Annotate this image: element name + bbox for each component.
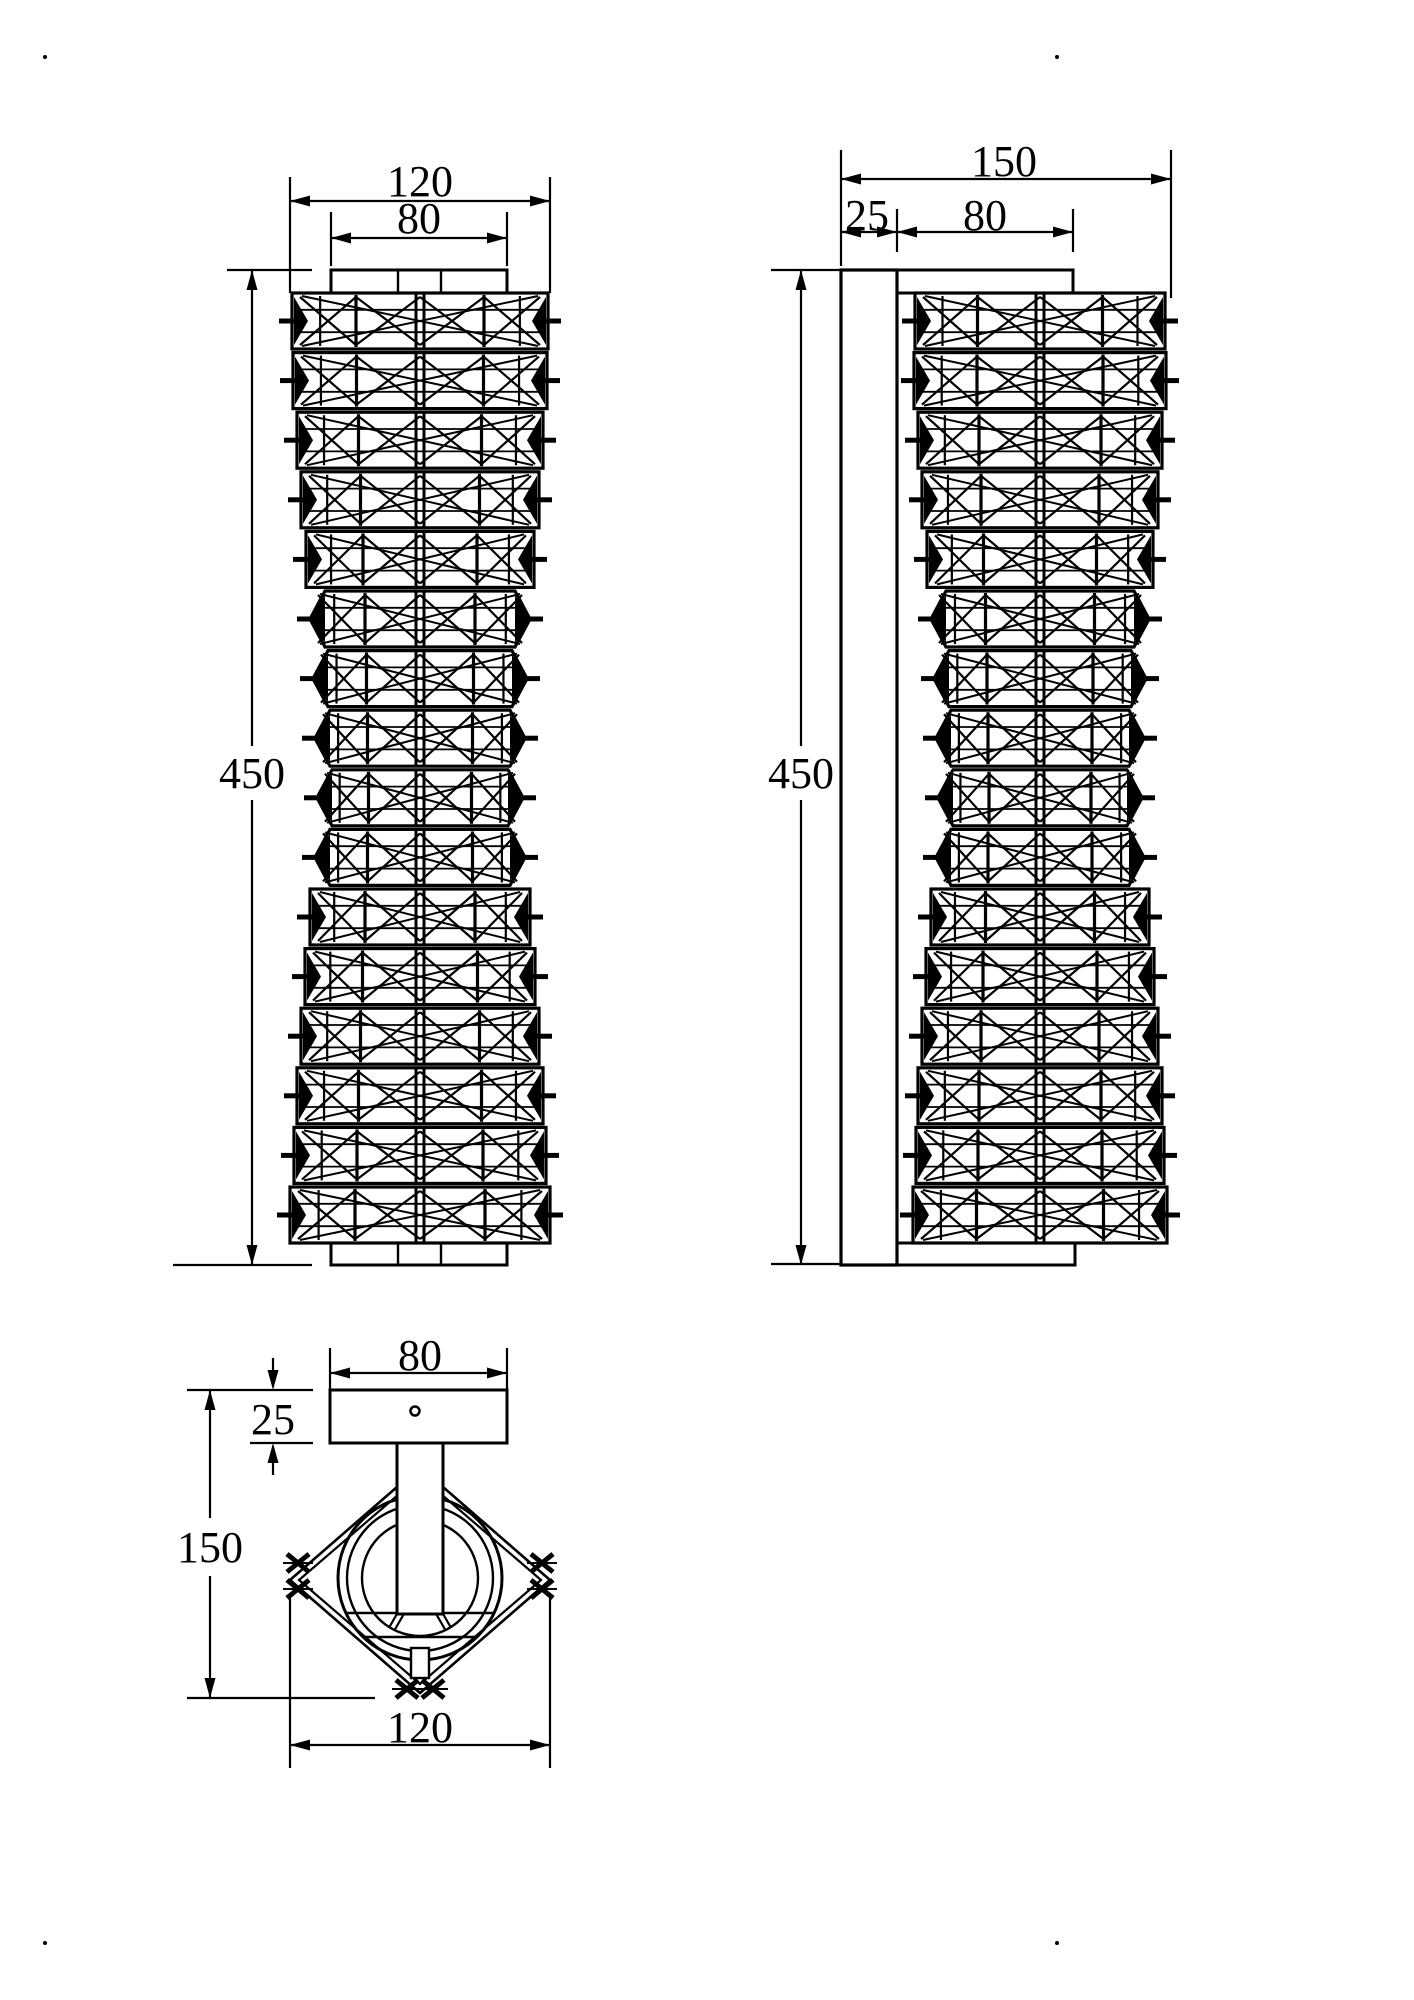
dim-arrow [205, 1678, 216, 1698]
dimension-bottom-plate-width: 80 [330, 1331, 507, 1392]
band-tip [917, 297, 931, 345]
crystal-band [901, 353, 1179, 409]
band-tip [924, 476, 938, 524]
band-tip [1142, 1012, 1156, 1060]
band-tip [527, 416, 541, 464]
band-tip [924, 1012, 938, 1060]
dim-arrow [530, 1740, 550, 1751]
corner-dot [1055, 1941, 1059, 1945]
crystal-band [284, 1068, 556, 1124]
dim-arrow [331, 233, 351, 244]
band-tip [303, 1012, 317, 1060]
dim-arrow [796, 1245, 807, 1265]
dim-arrow [1053, 227, 1073, 238]
dimension-front-width-inner: 80 [331, 194, 507, 266]
crystal-band [923, 829, 1157, 885]
band-tip [1146, 416, 1160, 464]
bottom-cap [331, 1243, 507, 1265]
dim-arrow [205, 1390, 216, 1410]
band-tip [299, 416, 313, 464]
crystal-band [288, 472, 552, 528]
band-tip [1149, 297, 1163, 345]
band-tip [920, 416, 934, 464]
band-tip [523, 1012, 537, 1060]
band-tip [918, 1131, 932, 1179]
band-tip [916, 357, 930, 405]
crystal-band [279, 293, 561, 349]
dimension-front-height: 450 [173, 270, 312, 1265]
dim-arrow [290, 1740, 310, 1751]
crystal-band [304, 770, 536, 826]
dim-arrow [268, 1443, 279, 1463]
crystal-band [297, 889, 543, 945]
crystal-band [914, 531, 1166, 587]
side-view [841, 270, 1180, 1265]
crystal-band [293, 531, 547, 587]
band-tip [1150, 357, 1164, 405]
dim-arrow [796, 270, 807, 290]
crystal-band [300, 651, 540, 707]
dim-label-bottom-width: 120 [387, 1703, 453, 1752]
dim-arrow [841, 174, 861, 185]
crystal-band [900, 1187, 1180, 1243]
dimension-side-height: 450 [768, 270, 841, 1265]
wall-plate-side [841, 270, 897, 1265]
corner-dot [43, 1941, 47, 1945]
dim-label-bottom-plate-depth: 25 [251, 1395, 295, 1444]
dim-label-side-height: 450 [768, 749, 834, 798]
band-tip [299, 1072, 313, 1120]
stem-foot [411, 1648, 429, 1678]
dim-arrow [1151, 174, 1171, 185]
band-tip [294, 297, 308, 345]
crystal-band [280, 353, 560, 409]
dim-label-front-height: 450 [219, 749, 285, 798]
band-tip [531, 357, 545, 405]
dim-label-bottom-plate-width: 80 [398, 1331, 442, 1380]
dim-arrow [897, 227, 917, 238]
dim-arrow [330, 1368, 350, 1379]
crystal-x-mark [527, 1580, 557, 1598]
dim-label-side-plate-depth: 25 [845, 191, 889, 240]
band-tip [920, 1072, 934, 1120]
band-tip [523, 476, 537, 524]
dim-arrow [487, 233, 507, 244]
band-tip [915, 1191, 929, 1239]
crystal-band [909, 1008, 1171, 1064]
crystal-band [905, 412, 1175, 468]
band-tip [1146, 1072, 1160, 1120]
crystal-band [297, 591, 543, 647]
band-tip [1148, 1131, 1162, 1179]
band-tip [1151, 1191, 1165, 1239]
corner-dot [43, 55, 47, 59]
bottom-view [283, 1390, 557, 1698]
crystal-band [921, 651, 1159, 707]
crystal-band [923, 710, 1157, 766]
dimension-side-plate-depth: 25 [841, 191, 897, 252]
drawing-canvas: 1208045015025804508025150120 [0, 0, 1414, 2000]
dim-label-side-body-offset: 80 [963, 191, 1007, 240]
bottom-cap [897, 1243, 1075, 1265]
band-tip [534, 1191, 548, 1239]
dim-arrow [530, 196, 550, 207]
dim-arrow [247, 270, 258, 290]
dim-arrow [247, 1245, 258, 1265]
wall-plate-top [330, 1390, 507, 1443]
crystal-band [284, 412, 556, 468]
front-view [277, 270, 563, 1265]
crystal-x-mark [283, 1580, 313, 1598]
dim-arrow [487, 1368, 507, 1379]
crystal-x-mark [283, 1554, 313, 1572]
crystal-band [302, 710, 538, 766]
crystal-band [292, 949, 548, 1005]
crystal-band [909, 472, 1171, 528]
band-tip [527, 1072, 541, 1120]
crystal-band [905, 1068, 1175, 1124]
crystal-band [277, 1187, 563, 1243]
band-tip [295, 357, 309, 405]
dim-arrow [290, 196, 310, 207]
dim-label-front-width-inner: 80 [397, 194, 441, 243]
crystal-x-mark [527, 1554, 557, 1572]
crystal-band [918, 591, 1162, 647]
band-tip [292, 1191, 306, 1239]
band-tip [296, 1131, 310, 1179]
crystal-band [288, 1008, 552, 1064]
crystal-band [281, 1127, 559, 1183]
dimension-side-body-offset: 80 [897, 191, 1073, 252]
band-tip [1142, 476, 1156, 524]
stem [397, 1443, 443, 1614]
dim-arrow [268, 1370, 279, 1390]
crystal-band [903, 1127, 1177, 1183]
screw-hole [411, 1407, 420, 1416]
crystal-band [925, 770, 1155, 826]
dim-label-side-depth-total: 150 [971, 137, 1037, 186]
corner-dot [1055, 55, 1059, 59]
crystal-band [918, 889, 1162, 945]
top-cap [331, 270, 507, 293]
dimension-bottom-plate-depth: 25 [187, 1358, 313, 1475]
band-tip [532, 297, 546, 345]
band-tip [530, 1131, 544, 1179]
dim-label-bottom-depth: 150 [177, 1523, 243, 1572]
crystal-band [913, 949, 1167, 1005]
technical-drawing: 1208045015025804508025150120 [0, 0, 1414, 2000]
crystal-band [302, 829, 538, 885]
top-cap [897, 270, 1073, 293]
crystal-band [902, 293, 1178, 349]
band-tip [303, 476, 317, 524]
